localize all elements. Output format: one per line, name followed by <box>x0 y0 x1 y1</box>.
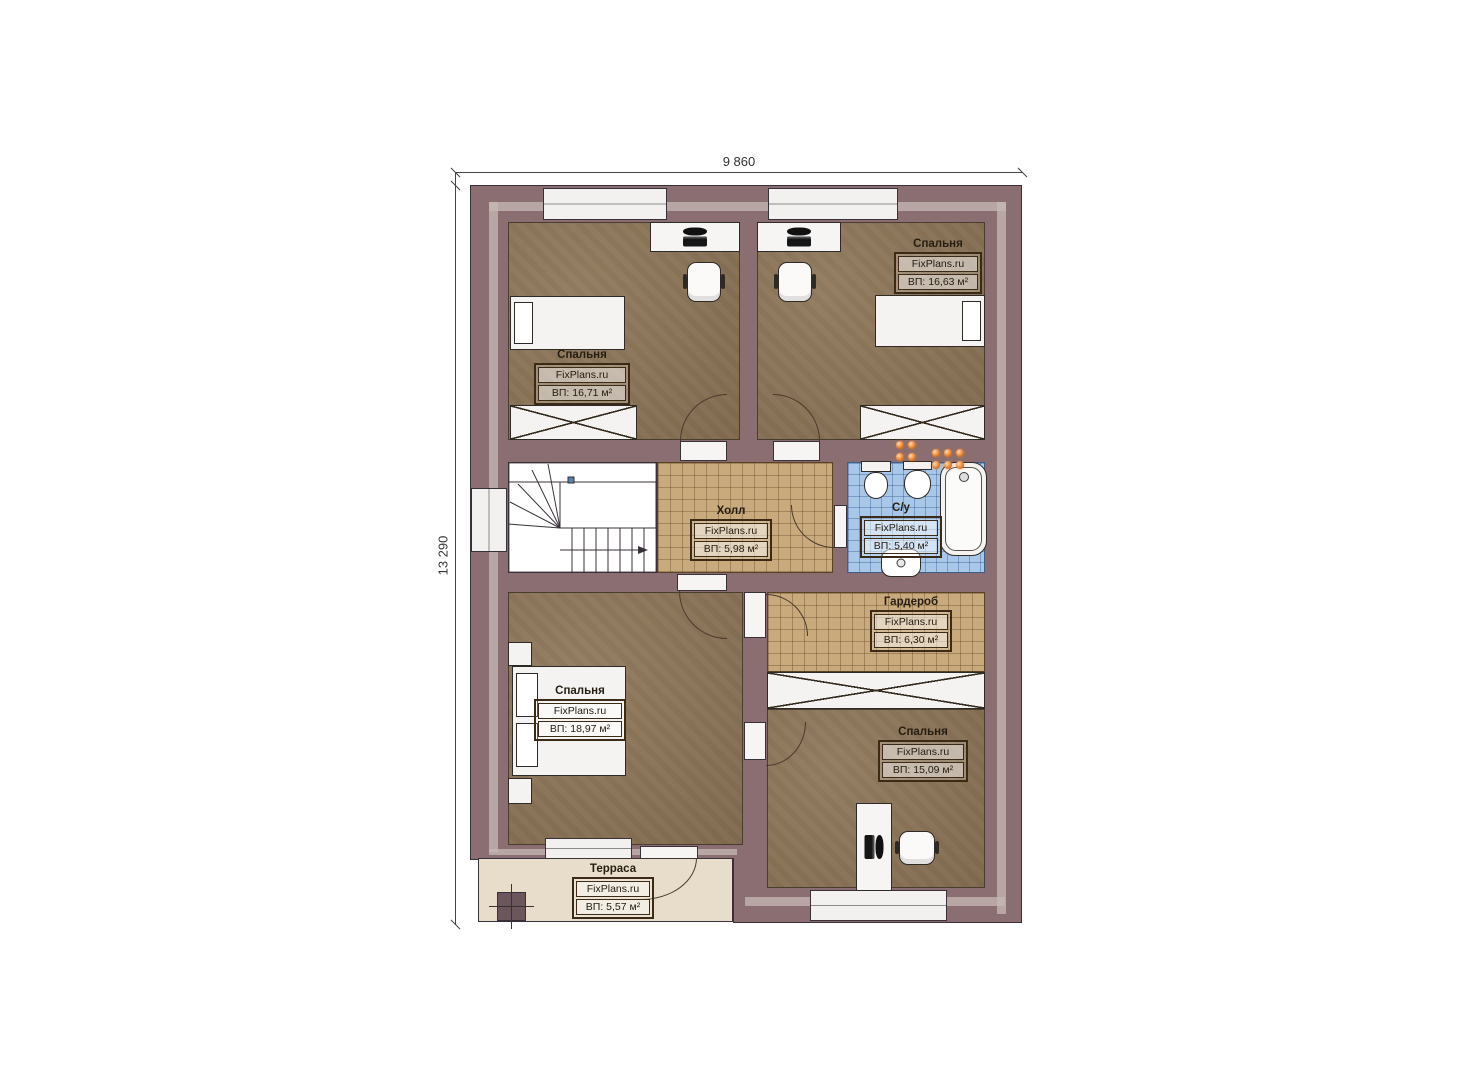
office-chair-symbol <box>899 831 935 865</box>
area-label: ВП: 5,98 м² <box>694 541 768 557</box>
window-left-stairs <box>471 488 507 552</box>
area-label: ВП: 5,40 м² <box>864 538 938 554</box>
room-name: Гардероб <box>870 596 952 609</box>
area-label: ВП: 6,30 м² <box>874 632 948 648</box>
computer-icon <box>786 228 812 247</box>
toilet-bowl <box>864 472 888 499</box>
brand-label: FixPlans.ru <box>538 703 622 719</box>
bidet-bowl <box>904 470 931 499</box>
nightstand-symbol <box>508 778 532 804</box>
radiator-dots <box>896 441 916 461</box>
dimension-line-top <box>455 172 1023 173</box>
door-threshold-bedroom-bottom-right <box>744 722 766 760</box>
office-chair-symbol <box>687 262 721 302</box>
area-label: ВП: 15,09 м² <box>882 762 964 778</box>
bed-symbol <box>510 296 625 350</box>
dimension-line-left <box>455 172 456 925</box>
door-threshold-bedroom-top-left <box>680 441 727 461</box>
room-name: Спальня <box>878 726 968 739</box>
room-name: Терраса <box>572 863 654 876</box>
room-name: Спальня <box>894 238 982 251</box>
desk-symbol <box>650 222 740 252</box>
brand-label: FixPlans.ru <box>874 614 948 630</box>
room-label-bedroom-bottom-right: Спальня FixPlans.ru ВП: 15,09 м² <box>878 726 968 782</box>
brand-label: FixPlans.ru <box>694 523 768 539</box>
bathtub-symbol <box>940 462 987 556</box>
room-name: С/у <box>860 502 942 515</box>
window-top-left <box>543 188 667 220</box>
brand-label: FixPlans.ru <box>898 256 978 272</box>
wall-layer-right <box>997 202 1006 914</box>
bidet-symbol <box>903 461 932 470</box>
dimension-width-label: 9 860 <box>704 154 774 169</box>
area-label: ВП: 16,63 м² <box>898 274 978 290</box>
brand-label: FixPlans.ru <box>864 520 938 536</box>
wardrobe-unit-symbol <box>860 405 985 440</box>
room-label-hall: Холл FixPlans.ru ВП: 5,98 м² <box>690 505 772 561</box>
column-axis-v <box>511 884 512 929</box>
office-chair-symbol <box>778 262 812 302</box>
nightstand-symbol <box>508 642 532 666</box>
brand-label: FixPlans.ru <box>882 744 964 760</box>
door-threshold-wardrobe <box>744 592 766 638</box>
desk-symbol <box>757 222 841 252</box>
radiator-dots <box>932 449 964 469</box>
door-threshold-bedroom-top-right <box>773 441 820 461</box>
room-label-bedroom-top-left: Спальня FixPlans.ru ВП: 16,71 м² <box>534 349 630 405</box>
computer-icon <box>865 834 884 860</box>
window-bottom-right <box>810 890 947 921</box>
area-label: ВП: 16,71 м² <box>538 385 626 401</box>
room-name: Холл <box>690 505 772 518</box>
window-top-right <box>768 188 898 220</box>
desk-symbol <box>856 803 892 891</box>
staircase-symbol <box>508 462 657 573</box>
dimension-height-label: 13 290 <box>436 521 451 591</box>
room-label-wardrobe: Гардероб FixPlans.ru ВП: 6,30 м² <box>870 596 952 652</box>
area-label: ВП: 18,97 м² <box>538 721 622 737</box>
brand-label: FixPlans.ru <box>576 881 650 897</box>
area-label: ВП: 5,57 м² <box>576 899 650 915</box>
room-label-bedroom-bottom-left: Спальня FixPlans.ru ВП: 18,97 м² <box>534 685 626 741</box>
room-label-bedroom-top-right: Спальня FixPlans.ru ВП: 16,63 м² <box>894 238 982 294</box>
brand-label: FixPlans.ru <box>538 367 626 383</box>
door-threshold-bedroom-bottom-left <box>677 574 727 591</box>
computer-icon <box>682 228 708 247</box>
wardrobe-unit-symbol <box>767 672 985 709</box>
bed-symbol <box>875 295 985 347</box>
toilet-symbol <box>861 461 891 472</box>
room-label-terrace: Терраса FixPlans.ru ВП: 5,57 м² <box>572 863 654 919</box>
room-label-bathroom: С/у FixPlans.ru ВП: 5,40 м² <box>860 502 942 558</box>
door-threshold-bathroom <box>834 505 847 548</box>
wardrobe-unit-symbol <box>510 405 637 440</box>
window-bottom-left <box>545 838 632 859</box>
room-name: Спальня <box>534 685 626 698</box>
room-name: Спальня <box>534 349 630 362</box>
